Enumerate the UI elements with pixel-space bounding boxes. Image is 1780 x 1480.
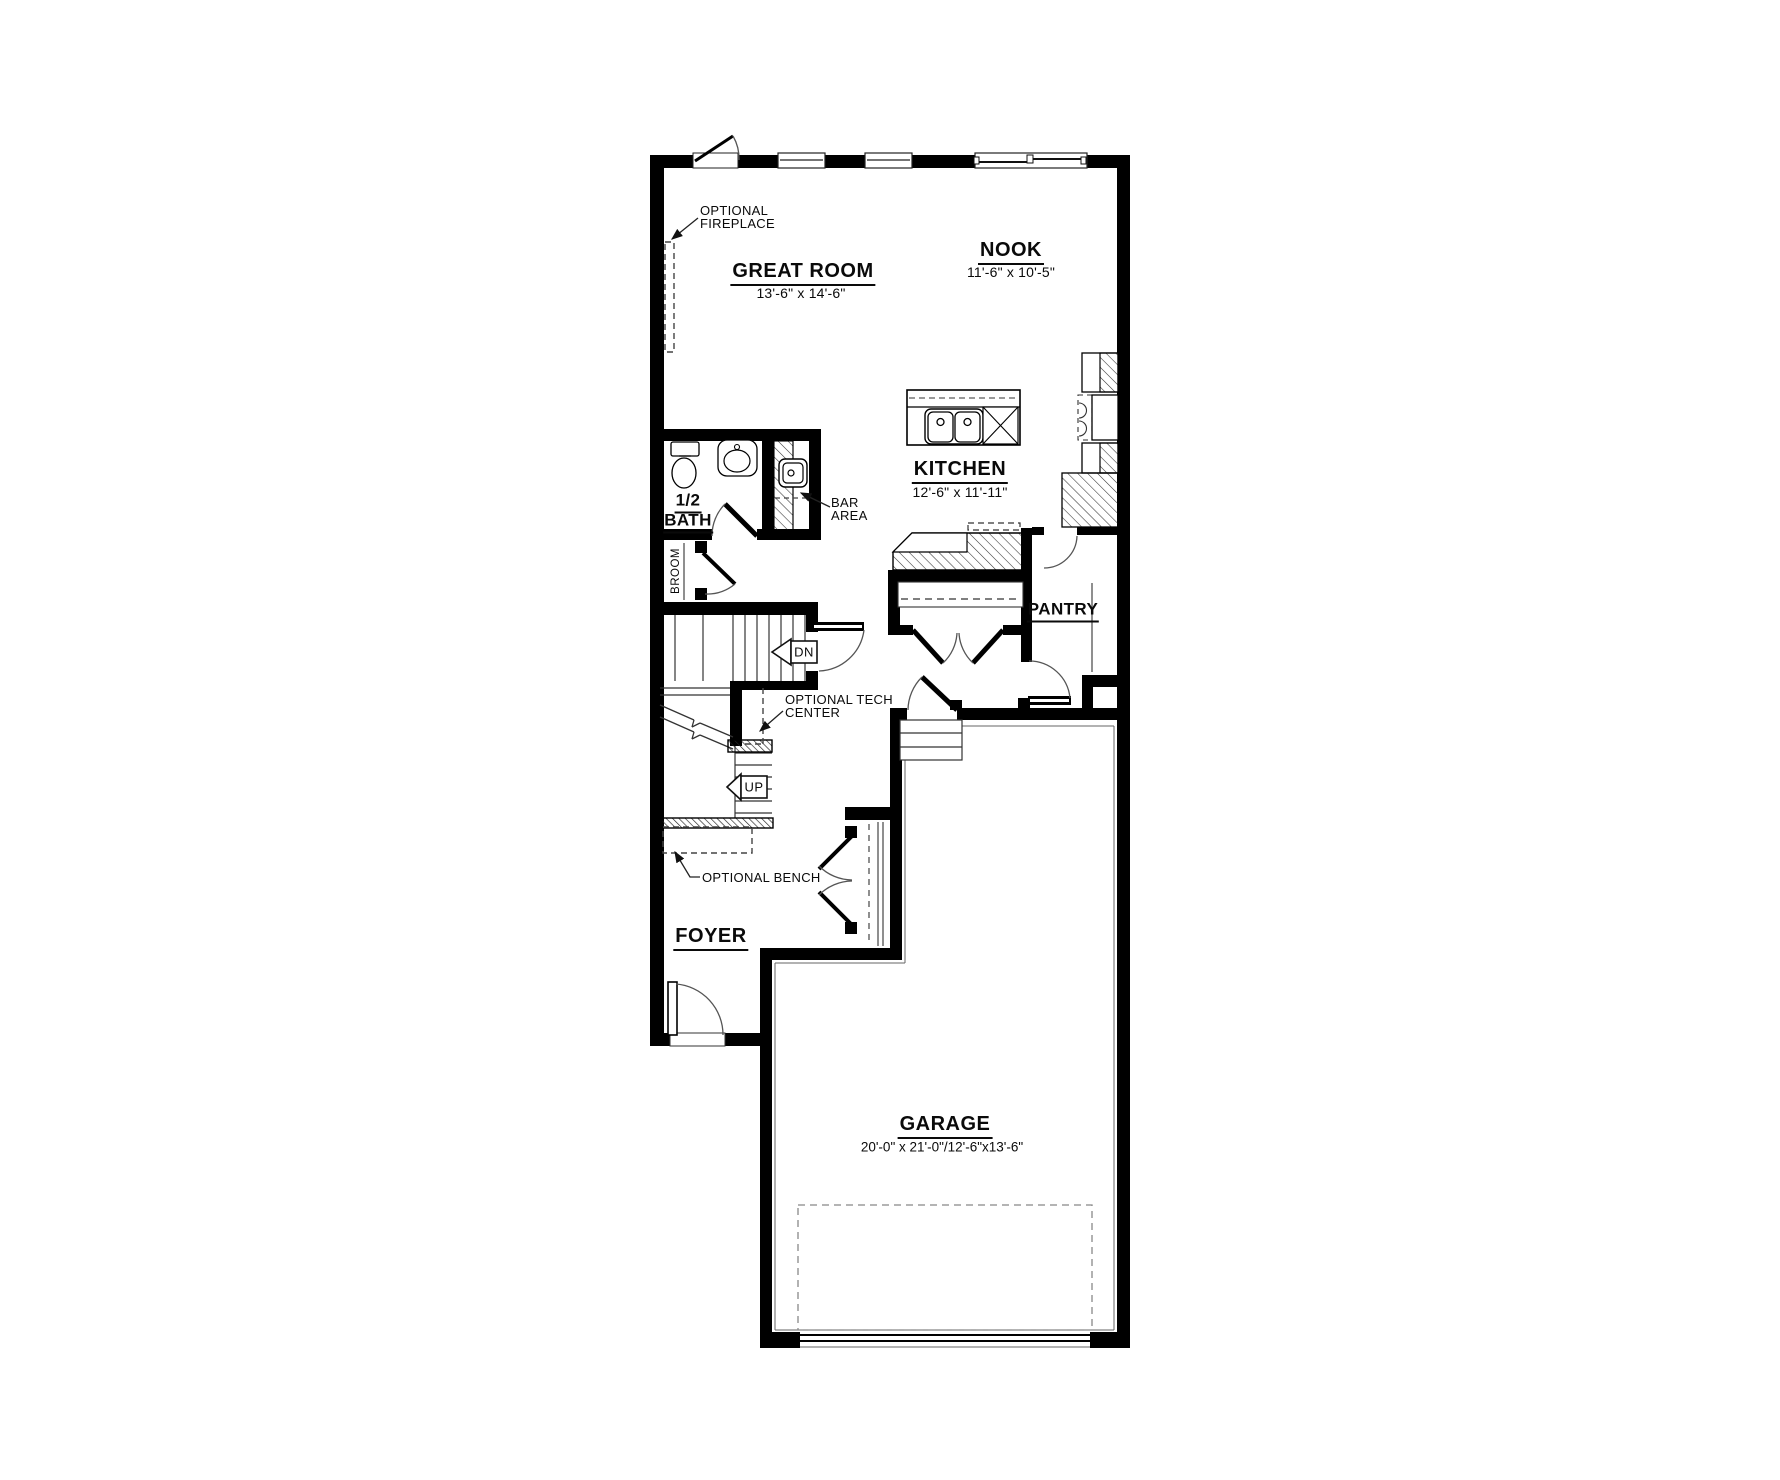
bath-sink <box>718 440 757 476</box>
mud-bench-counter <box>893 523 1023 607</box>
kitchen-dims: 12'-6" x 11'-11" <box>912 484 1007 500</box>
floor-plan-drawing <box>0 0 1780 1480</box>
window-1 <box>778 153 825 168</box>
toilet <box>671 442 699 488</box>
great-room-dims: 13'-6" x 14'-6" <box>756 285 845 301</box>
great-room-label: GREAT ROOM <box>730 260 875 286</box>
foyer-label: FOYER <box>673 925 748 951</box>
stair-cut-lines <box>660 705 733 749</box>
kitchen-double-door-left <box>913 630 943 663</box>
nook-label: NOOK <box>978 239 1044 265</box>
stair-up-label: UP <box>744 780 763 795</box>
pantry-door <box>1028 696 1071 705</box>
garage-steps <box>900 720 962 760</box>
pantry-label: PANTRY <box>1027 600 1099 623</box>
optional-fireplace-label-2: FIREPLACE <box>700 217 775 231</box>
garage-door <box>800 1332 1090 1348</box>
broom-label: BROOM <box>670 548 682 594</box>
garage-interior-face-lines <box>775 726 1114 1330</box>
floor-plan-page: GREAT ROOM 13'-6" x 14'-6" NOOK 11'-6" x… <box>0 0 1780 1480</box>
exterior-walls <box>650 155 1130 1348</box>
garage-door-clearance-dashed <box>798 1205 1092 1330</box>
fireplace-leader <box>672 218 698 239</box>
bar-area-counter <box>774 441 809 530</box>
island-dishwasher <box>983 407 1018 444</box>
window-3-slider <box>974 153 1087 168</box>
front-door <box>668 982 725 1046</box>
closet-door-bottom <box>819 892 852 925</box>
range-appliance <box>1078 395 1118 440</box>
kitchen-double-door-right <box>973 630 1003 663</box>
bench-leader <box>675 852 700 877</box>
kitchen-island <box>907 390 1020 445</box>
garage-elements <box>775 720 1114 1348</box>
stair-down-label: DN <box>794 645 814 660</box>
optional-bench-label: OPTIONAL BENCH <box>702 871 821 885</box>
half-bath-door <box>725 504 757 536</box>
garage-entry-door <box>922 677 957 710</box>
patio-door-opening <box>693 136 739 168</box>
nook-dims: 11'-6" x 10'-5" <box>967 264 1055 280</box>
kitchen-counters <box>1062 353 1118 527</box>
broom-door <box>703 553 735 584</box>
bar-area-label-2: AREA <box>831 509 868 523</box>
half-bath-label-2: BATH <box>663 511 713 534</box>
kitchen-label: KITCHEN <box>912 458 1008 484</box>
optional-fireplace-outline <box>665 242 674 352</box>
closet-door-top <box>819 836 852 869</box>
optional-bench-outline <box>663 827 752 853</box>
island-double-sink <box>925 409 983 444</box>
window-2 <box>865 153 912 168</box>
garage-label: GARAGE <box>898 1113 993 1139</box>
bathroom-fixtures <box>671 440 757 488</box>
bar-sink <box>779 459 807 487</box>
garage-entry-opening <box>907 708 950 720</box>
optional-tech-center-label-2: CENTER <box>785 706 840 720</box>
garage-dims: 20'-0" x 21'-0"/12'-6"x13'-6" <box>861 1140 1023 1155</box>
basement-stair-door <box>812 622 864 631</box>
